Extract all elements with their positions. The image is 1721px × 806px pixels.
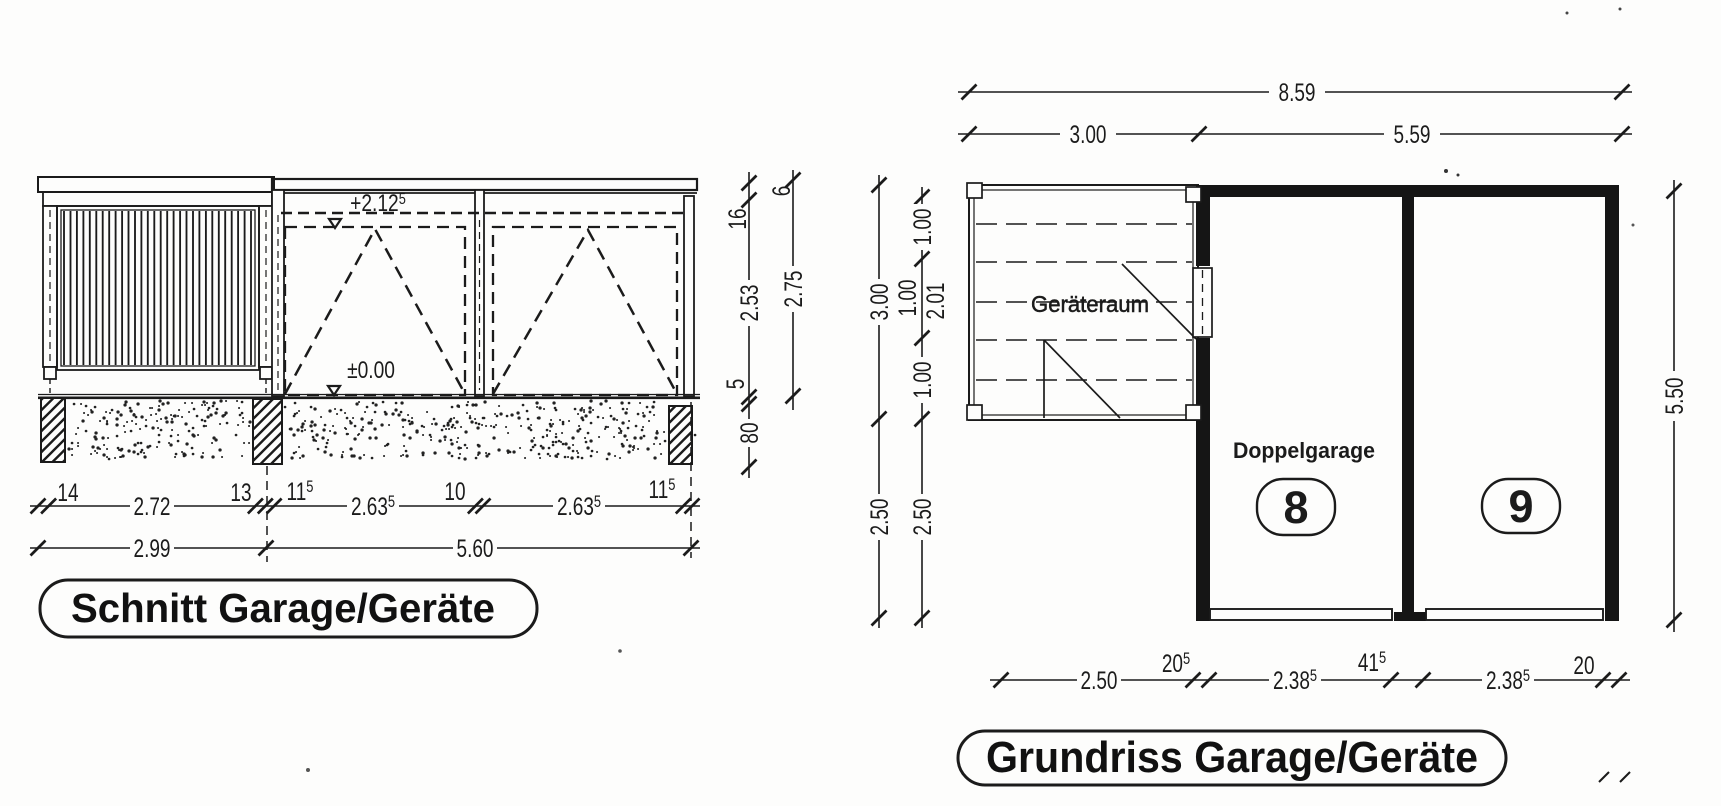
svg-text:2.50: 2.50 <box>908 499 936 536</box>
svg-text:2.72: 2.72 <box>134 492 171 520</box>
svg-text:9: 9 <box>1508 481 1533 532</box>
svg-text:1.00: 1.00 <box>893 280 921 317</box>
svg-text:Geräteraum: Geräteraum <box>1031 291 1149 317</box>
svg-text:2.50: 2.50 <box>1081 666 1118 694</box>
svg-text:13: 13 <box>230 478 251 506</box>
svg-text:80: 80 <box>735 422 763 443</box>
svg-text:5.60: 5.60 <box>457 534 494 562</box>
svg-text:6: 6 <box>767 186 795 197</box>
svg-text:5.59: 5.59 <box>1394 120 1431 148</box>
svg-text:1.00: 1.00 <box>908 209 936 246</box>
svg-text:16: 16 <box>723 208 751 229</box>
svg-text:2.01: 2.01 <box>921 283 949 320</box>
svg-text:8: 8 <box>1283 482 1308 533</box>
svg-text:Grundriss Garage/Geräte: Grundriss Garage/Geräte <box>986 733 1478 782</box>
svg-text:2.99: 2.99 <box>134 534 171 562</box>
svg-text:Doppelgarage: Doppelgarage <box>1233 438 1375 463</box>
svg-text:5.50: 5.50 <box>1660 378 1688 415</box>
svg-text:2.75: 2.75 <box>779 271 807 308</box>
svg-text:14: 14 <box>57 478 78 506</box>
svg-text:8.59: 8.59 <box>1279 78 1316 106</box>
svg-text:2.53: 2.53 <box>735 285 763 322</box>
svg-text:2.50: 2.50 <box>865 499 893 536</box>
svg-text:+2.125: +2.125 <box>350 189 406 217</box>
svg-text:3.00: 3.00 <box>1070 120 1107 148</box>
svg-text:±0.00: ±0.00 <box>347 356 395 384</box>
svg-text:1.00: 1.00 <box>908 362 936 399</box>
svg-text:5: 5 <box>721 379 749 390</box>
svg-text:Schnitt Garage/Geräte: Schnitt Garage/Geräte <box>71 585 495 631</box>
svg-text:10: 10 <box>444 477 465 505</box>
svg-text:20: 20 <box>1573 651 1594 679</box>
svg-text:3.00: 3.00 <box>865 284 893 321</box>
